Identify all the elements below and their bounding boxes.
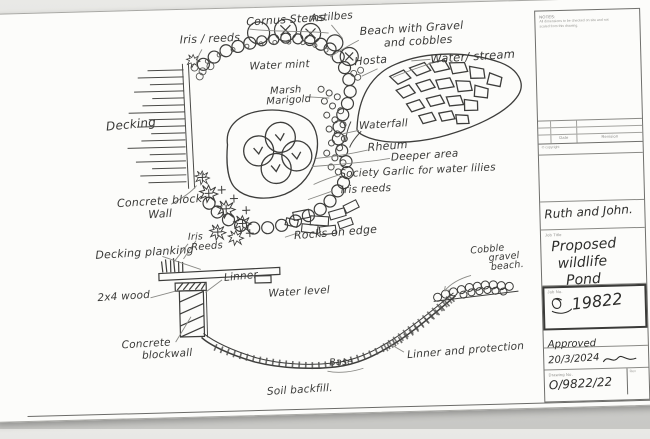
label-concrete-line2: Wall [148,208,173,220]
label-iris-reeds: Iris / reeds [180,32,241,46]
rev-cell-label: Rev [630,369,647,374]
label-iris-reeds-2: Iris reeds [341,183,392,196]
copyright-note: © copyright [539,142,643,153]
revision-table: Date Revision © copyright [538,119,643,156]
job-number-box: Job No. 19822 [542,284,647,331]
client-name: Ruth and John. [544,202,641,222]
job-title-box: Job Title Proposed wildlife Pond [541,228,646,287]
scanned-drawing-sheet: Iris / reeds Cornus Stems Astilbes Beach… [0,0,650,429]
client-box: Ruth and John. [540,200,645,231]
deep-area-lilies [226,109,319,199]
label-hosta: Hosta [354,54,388,68]
label-base: Base [329,357,353,368]
section-blockwall [175,282,207,338]
rev-cell: Rev [626,368,649,395]
title-block: NOTES: All dimensions to be checked on s… [534,8,650,403]
section-decking [158,255,280,285]
label-water-mint: Water mint [249,59,310,72]
waterfall-channel [318,85,362,175]
pond-inner-edges [197,46,340,222]
notes-box: NOTES: All dimensions to be checked on s… [535,9,642,122]
empty-box [539,153,644,203]
flourish-mark [548,295,573,316]
date-row: 20/3/2024 [544,346,649,371]
paper-sheet: Iris / reeds Cornus Stems Astilbes Beach… [0,0,650,423]
water-level-line [209,289,463,304]
drawing-number-box: Drawing No. O/9822/22 Rev [545,368,650,397]
revision-col-date: Date [551,135,577,144]
signature-squiggle [602,351,638,366]
date-text: 20/3/2024 [548,352,600,366]
